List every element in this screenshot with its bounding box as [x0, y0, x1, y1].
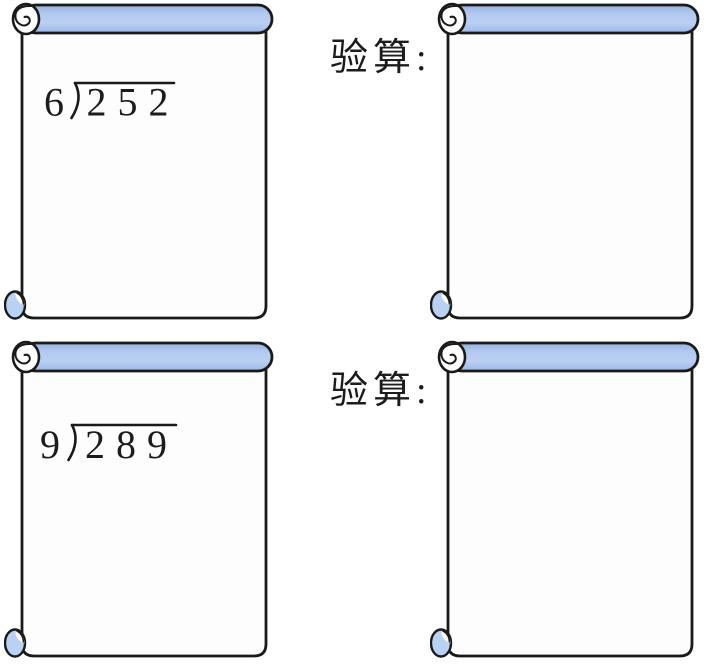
check-label-2: 验算:	[330, 372, 432, 410]
scroll-shape-instance	[431, 342, 698, 657]
scroll-panel-check-2	[430, 340, 706, 662]
divisor-text: 6	[44, 80, 64, 125]
worksheet-page: 6 252 9 289 验算: 验算:	[0, 0, 706, 666]
scroll-shape-instance	[431, 4, 698, 319]
scroll-panel-problem-2	[4, 340, 280, 662]
scroll-panel-problem-1	[4, 2, 280, 324]
long-division-problem-2: 9 289	[32, 410, 187, 468]
dividend-text: 289	[85, 422, 178, 467]
scroll-panel-check-1	[430, 2, 706, 324]
division-bracket	[72, 83, 79, 118]
check-label-1: 验算:	[330, 39, 432, 77]
division-bracket	[69, 425, 76, 460]
divisor-text: 9	[40, 422, 60, 467]
scroll-shape-instance	[5, 4, 272, 319]
dividend-text: 252	[87, 80, 180, 125]
long-division-problem-1: 6 252	[36, 70, 186, 126]
scroll-shape-instance	[5, 342, 272, 657]
